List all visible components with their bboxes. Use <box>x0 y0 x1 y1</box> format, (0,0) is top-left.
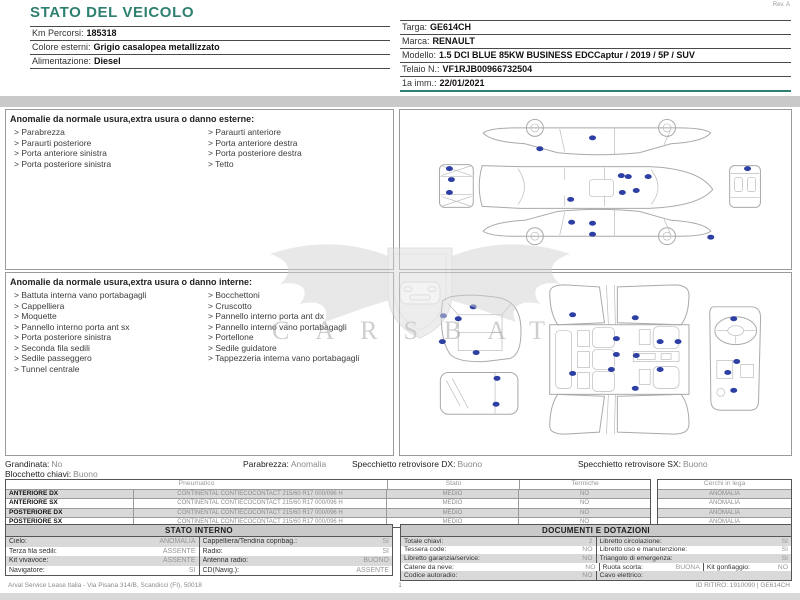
tire-row: ANTERIORE DX CONTINENTAL CONTIECOCONTACT… <box>6 490 650 500</box>
field-cell: Codice autoradio:NO <box>401 571 596 580</box>
field-cell: Terza fila sedili:ASSENTE <box>6 547 199 557</box>
anomaly-item: > Porta anteriore sinistra <box>14 148 196 159</box>
field-label: Marca: <box>402 36 430 46</box>
field-label: Kit vivavoce: <box>9 557 48 564</box>
tire-header-termiche: Termiche <box>520 480 650 489</box>
exterior-damage-diagram <box>400 110 789 267</box>
separator-band <box>0 96 800 107</box>
documenti-title: DOCUMENTI E DOTAZIONI <box>401 525 791 537</box>
field-value: BUONO <box>360 557 389 564</box>
field-cell: Triangolo di emergenza:SI <box>596 554 792 563</box>
summary-specchietto-sx: Specchietto retrovisore SX:Buono <box>578 459 708 469</box>
tire-state-cell: MEDIO <box>387 490 519 499</box>
field-value: BUONA <box>673 564 700 571</box>
field-cell: Cielo:ANOMALIA <box>6 537 199 547</box>
field-value: SI <box>379 538 389 545</box>
tire-state-cell: MEDIO <box>387 509 519 518</box>
summary-value: Anomalia <box>291 459 326 469</box>
anomaly-item: > Battuta interna vano portabagagli <box>14 290 196 301</box>
summary-value: Buono <box>73 469 98 479</box>
field-value: Grigio casalopea metallizzato <box>94 42 220 52</box>
interior-damage-diagram <box>400 273 789 453</box>
tire-position-cell: POSTERIORE DX <box>6 509 134 518</box>
anomaly-item: > Sedile passeggero <box>14 353 196 364</box>
anomaly-item: > Porta posteriore sinistra <box>14 332 196 343</box>
summary-value: Buono <box>683 459 708 469</box>
field-label: Km Percorsi: <box>32 28 84 38</box>
info-row-marca: Marca:RENAULT <box>400 35 791 49</box>
alloy-header-row: Cerchi in lega <box>658 480 791 490</box>
field-cell: Antenna radio:BUONO <box>199 556 393 566</box>
field-label: Telaio N.: <box>402 64 440 74</box>
field-label: Modello: <box>402 50 436 60</box>
tire-position-cell: ANTERIORE DX <box>6 490 134 499</box>
field-label: Ruota scorta: <box>603 564 643 571</box>
exterior-damage-dots <box>446 135 751 239</box>
exterior-anomalies-title: Anomalie da normale usura,extra usura o … <box>6 110 393 127</box>
field-value: NO <box>582 564 595 571</box>
revision-label: Rev. A <box>773 2 790 8</box>
field-value: 2 <box>586 538 593 545</box>
field-cell: Libretto uso e manutenzione:SI <box>596 546 792 555</box>
tire-table: Pneumatico Stato Termiche ANTERIORE DX C… <box>5 479 651 528</box>
field-label: Triangolo di emergenza: <box>600 555 673 562</box>
field-value: 1.5 DCI BLUE 85KW BUSINESS EDCCaptur / 2… <box>439 50 695 60</box>
page-title: STATO DEL VEICOLO <box>30 4 194 21</box>
field-value: ASSENTE <box>353 567 389 574</box>
page-footer: Arval Service Lease Italia - Via Pisana … <box>0 582 800 592</box>
anomaly-item: > Porta posteriore sinistra <box>14 159 196 170</box>
field-label: Kit gonfiaggio: <box>707 564 750 571</box>
field-value: ASSENTE <box>160 548 196 555</box>
tire-model-cell: CONTINENTAL CONTIECOCONTACT 215/60 R17 0… <box>134 509 387 518</box>
stato-interno-row: Cielo:ANOMALIA Cappelliera/Tendina copri… <box>6 537 392 547</box>
field-cell: Navigatore:SI <box>6 566 199 576</box>
field-value: NO <box>579 555 592 562</box>
field-label: Cappelliera/Tendina copribag.: <box>203 538 298 545</box>
field-cell: Libretto circolazione:SI <box>596 537 792 546</box>
field-cell: Ruota scorta:BUONA <box>600 563 703 572</box>
field-label: Colore esterni: <box>32 42 91 52</box>
stato-interno-row: Terza fila sedili:ASSENTE Radio:SI <box>6 547 392 557</box>
info-row-modello: Modello:1.5 DCI BLUE 85KW BUSINESS EDCCa… <box>400 49 791 63</box>
tire-winter-cell: NO <box>519 490 650 499</box>
tire-row: POSTERIORE DX CONTINENTAL CONTIECOCONTAC… <box>6 509 650 519</box>
field-value: Diesel <box>94 56 121 66</box>
interior-anomalies-right-column: > Bocchettoni > Cruscotto > Pannello int… <box>208 290 388 364</box>
stato-interno-row: Kit vivavoce:ASSENTE Antenna radio:BUONO <box>6 556 392 566</box>
interior-anomalies-box: Anomalie da normale usura,extra usura o … <box>5 272 394 456</box>
alloy-row: ANOMALIA <box>658 490 791 500</box>
alloy-value-cell: ANOMALIA <box>658 499 791 508</box>
field-label: Totale chiavi: <box>404 538 443 545</box>
documenti-table: DOCUMENTI E DOTAZIONI Totale chiavi:2 Li… <box>400 524 792 581</box>
anomaly-item: > Moquette <box>14 311 196 322</box>
field-label: Catene da neve: <box>404 564 454 571</box>
exterior-anomalies-left-column: > Parabrezza > Paraurti posteriore > Por… <box>14 127 196 169</box>
documenti-row: Catene da neve:NO Ruota scorta:BUONA Kit… <box>401 563 791 572</box>
documenti-row: Tessera code:NO Libretto uso e manutenzi… <box>401 546 791 555</box>
field-value: VF1RJB00966732504 <box>443 64 533 74</box>
alloy-row: ANOMALIA <box>658 499 791 509</box>
split-cell: Ruota scorta:BUONA Kit gonfiaggio:NO <box>599 563 792 572</box>
footer-id-ritiro: ID RITIRO: 1910090 | GE614CH <box>696 582 790 589</box>
exterior-anomalies-right-column: > Paraurti anteriore > Porta anteriore d… <box>208 127 388 169</box>
anomaly-item: > Porta anteriore destra <box>208 138 388 149</box>
field-value: GE614CH <box>430 22 471 32</box>
field-label: Antenna radio: <box>203 557 249 564</box>
field-value: SI <box>779 538 788 545</box>
info-row-km: Km Percorsi:185318 <box>30 26 390 41</box>
summary-blocchetto-chiavi: Blocchetto chiavi:Buono <box>5 469 98 479</box>
anomaly-item: > Paraurti posteriore <box>14 138 196 149</box>
summary-value: No <box>51 459 62 469</box>
interior-anomalies-left-column: > Battuta interna vano portabagagli > Ca… <box>14 290 196 374</box>
summary-label: Blocchetto chiavi: <box>5 469 71 479</box>
interior-anomalies-title: Anomalie da normale usura,extra usura o … <box>6 273 393 290</box>
field-label: Targa: <box>402 22 427 32</box>
tire-header-pneumatico: Pneumatico <box>6 480 388 489</box>
anomaly-item: > Cruscotto <box>208 301 388 312</box>
anomaly-item: > Tunnel centrale <box>14 364 196 375</box>
field-label: Navigatore: <box>9 567 45 574</box>
field-label: Libretto uso e manutenzione: <box>600 546 688 553</box>
field-value: ASSENTE <box>160 557 196 564</box>
footer-company-address: Arval Service Lease Italia - Via Pisana … <box>8 582 202 589</box>
summary-label: Specchietto retrovisore DX: <box>352 459 455 469</box>
info-row-immatricolazione: 1a imm.:22/01/2021 <box>400 77 791 92</box>
field-value: ANOMALIA <box>156 538 195 545</box>
anomaly-item: > Bocchettoni <box>208 290 388 301</box>
tire-position-cell: ANTERIORE SX <box>6 499 134 508</box>
field-label: Codice autoradio: <box>404 572 457 579</box>
anomaly-item: > Sedile guidatore <box>208 343 388 354</box>
field-cell: Cappelliera/Tendina copribag.:SI <box>199 537 393 547</box>
vehicle-info-right: Targa:GE614CH Marca:RENAULT Modello:1.5 … <box>400 20 791 92</box>
summary-label: Parabrezza: <box>243 459 289 469</box>
field-value: SI <box>186 567 196 574</box>
summary-parabrezza: Parabrezza:Anomalia <box>243 459 326 469</box>
field-cell: Kit vivavoce:ASSENTE <box>6 556 199 566</box>
field-cell: Totale chiavi:2 <box>401 537 596 546</box>
field-label: Libretto garanzia/service: <box>404 555 480 562</box>
summary-label: Grandinata: <box>5 459 49 469</box>
info-row-colore: Colore esterni:Grigio casalopea metalliz… <box>30 41 390 55</box>
field-value: SI <box>779 555 788 562</box>
summary-value: Buono <box>457 459 482 469</box>
tire-header-row: Pneumatico Stato Termiche <box>6 480 650 490</box>
footer-page-number: 1 <box>398 582 402 589</box>
field-value: NO <box>775 564 788 571</box>
field-cell: Kit gonfiaggio:NO <box>703 563 791 572</box>
field-label: Tessera code: <box>404 546 446 553</box>
field-value: 22/01/2021 <box>440 78 485 88</box>
field-value: 185318 <box>87 28 117 38</box>
documenti-row: Codice autoradio:NO Cavo elettrico: <box>401 571 791 580</box>
field-label: Terza fila sedili: <box>9 548 57 555</box>
field-cell: Radio:SI <box>199 547 393 557</box>
field-value: NO <box>579 546 592 553</box>
field-label: Cavo elettrico: <box>600 572 643 579</box>
exterior-anomalies-box: Anomalie da normale usura,extra usura o … <box>5 109 394 270</box>
vehicle-report-page: STATO DEL VEICOLO Rev. A Km Percorsi:185… <box>0 0 800 600</box>
anomaly-item: > Paraurti anteriore <box>208 127 388 138</box>
field-label: Radio: <box>203 548 223 555</box>
documenti-row: Libretto garanzia/service:NO Triangolo d… <box>401 554 791 563</box>
info-row-telaio: Telaio N.:VF1RJB00966732504 <box>400 63 791 77</box>
summary-label: Specchietto retrovisore SX: <box>578 459 681 469</box>
field-label: CD(Navig.): <box>203 567 240 574</box>
tire-winter-cell: NO <box>519 499 650 508</box>
field-cell: Tessera code:NO <box>401 546 596 555</box>
summary-specchietto-dx: Specchietto retrovisore DX:Buono <box>352 459 482 469</box>
field-value: SI <box>379 548 389 555</box>
exterior-diagram-box <box>399 109 792 270</box>
field-value: RENAULT <box>433 36 475 46</box>
field-cell: CD(Navig.):ASSENTE <box>199 566 393 576</box>
alloy-value-cell: ANOMALIA <box>658 509 791 518</box>
field-cell: Cavo elettrico: <box>596 571 792 580</box>
tire-winter-cell: NO <box>519 509 650 518</box>
tire-state-cell: MEDIO <box>387 499 519 508</box>
anomaly-item: > Tappezzeria interna vano portabagagli <box>208 353 388 364</box>
anomaly-item: > Parabrezza <box>14 127 196 138</box>
bottom-band <box>0 593 800 600</box>
alloy-row: ANOMALIA <box>658 509 791 519</box>
summary-grandinata: Grandinata:No <box>5 459 62 469</box>
interior-diagram-box <box>399 272 792 456</box>
documenti-row: Totale chiavi:2 Libretto circolazione:SI <box>401 537 791 546</box>
field-cell: Libretto garanzia/service:NO <box>401 554 596 563</box>
field-cell: Catene da neve:NO <box>401 563 599 572</box>
info-row-alimentazione: Alimentazione:Diesel <box>30 55 390 69</box>
anomaly-item: > Pannello interno vano portabagagli <box>208 322 388 333</box>
anomaly-item: > Pannello interno porta ant dx <box>208 311 388 322</box>
alloy-value-cell: ANOMALIA <box>658 490 791 499</box>
alloy-wheels-table: Cerchi in lega ANOMALIA ANOMALIA ANOMALI… <box>657 479 792 528</box>
tire-row: ANTERIORE SX CONTINENTAL CONTIECOCONTACT… <box>6 499 650 509</box>
tire-model-cell: CONTINENTAL CONTIECOCONTACT 215/60 R17 0… <box>134 490 387 499</box>
stato-interno-table: STATO INTERNO Cielo:ANOMALIA Cappelliera… <box>5 524 393 576</box>
field-label: Libretto circolazione: <box>600 538 662 545</box>
anomaly-item: > Seconda fila sedili <box>14 343 196 354</box>
stato-interno-row: Navigatore:SI CD(Navig.):ASSENTE <box>6 566 392 576</box>
field-label: 1a imm.: <box>402 78 437 88</box>
alloy-header: Cerchi in lega <box>658 480 791 489</box>
field-value: SI <box>779 546 788 553</box>
field-value: NO <box>579 572 592 579</box>
stato-interno-title: STATO INTERNO <box>6 525 392 537</box>
info-row-targa: Targa:GE614CH <box>400 20 791 35</box>
anomaly-item: > Cappelliera <box>14 301 196 312</box>
tire-header-stato: Stato <box>388 480 520 489</box>
anomaly-item: > Pannello interno porta ant sx <box>14 322 196 333</box>
anomaly-item: > Porta posteriore destra <box>208 148 388 159</box>
anomaly-item: > Portellone <box>208 332 388 343</box>
anomaly-item: > Tetto <box>208 159 388 170</box>
tire-model-cell: CONTINENTAL CONTIECOCONTACT 215/60 R17 0… <box>134 499 387 508</box>
field-label: Alimentazione: <box>32 56 91 66</box>
field-label: Cielo: <box>9 538 27 545</box>
vehicle-info-left: Km Percorsi:185318 Colore esterni:Grigio… <box>30 26 390 69</box>
